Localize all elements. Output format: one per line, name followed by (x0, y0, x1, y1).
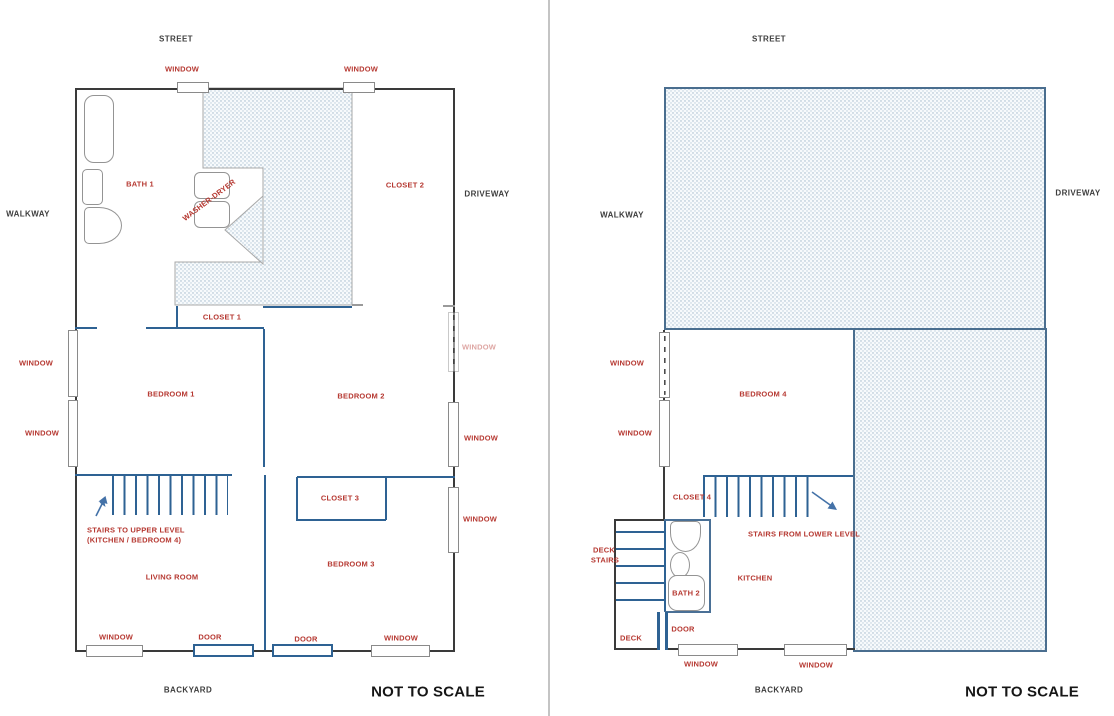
label-kitchen: KITCHEN (738, 574, 773, 583)
label-living-room: LIVING ROOM (146, 573, 199, 582)
label-bedroom1: BEDROOM 1 (147, 390, 194, 399)
label-window: WINDOW (384, 634, 418, 643)
label-deck: DECK (620, 634, 642, 643)
stairs-down-arrow-icon (806, 487, 846, 517)
label-not-to-scale: NOT TO SCALE (371, 684, 485, 701)
label-backyard: BACKYARD (164, 686, 212, 695)
label-driveway: DRIVEWAY (464, 190, 509, 199)
label-deck-stairs-2: STAIRS (591, 556, 619, 565)
label-stairs-from-lower: STAIRS FROM LOWER LEVEL (748, 530, 860, 539)
hatch-area-upper-top (665, 88, 1045, 329)
bathtub (84, 95, 114, 163)
stairs-from-lower-level (703, 477, 818, 517)
label-bath1: BATH 1 (126, 180, 154, 189)
label-window: WINDOW (344, 65, 378, 74)
label-closet3: CLOSET 3 (321, 494, 359, 503)
label-stairs-note-1: STAIRS TO UPPER LEVEL (87, 526, 185, 535)
label-bedroom4: BEDROOM 4 (739, 390, 786, 399)
wall-bedroom2-top (263, 306, 352, 308)
label-window-faded: WINDOW (462, 343, 496, 352)
label-closet4: CLOSET 4 (673, 493, 711, 502)
window-right-2 (448, 487, 459, 553)
label-backyard: BACKYARD (755, 686, 803, 695)
label-window: WINDOW (684, 660, 718, 669)
window-right-1 (448, 402, 459, 467)
window-upper-left-1 (659, 332, 670, 398)
floor-plan-canvas: BATH 1 WASHER-DRYER CLOSET 2 CLOSET 1 BE… (0, 0, 1114, 716)
label-door: DOOR (198, 633, 221, 642)
label-walkway: WALKWAY (6, 210, 50, 219)
door-kitchen-deck (657, 612, 668, 650)
label-not-to-scale: NOT TO SCALE (965, 684, 1079, 701)
wall-closet3-top (297, 476, 455, 478)
label-window: WINDOW (99, 633, 133, 642)
wall-segment-gray (352, 304, 363, 306)
label-street: STREET (159, 35, 193, 44)
door-bedroom3 (272, 644, 333, 657)
label-window: WINDOW (464, 434, 498, 443)
window-right-faded (448, 312, 459, 372)
label-street: STREET (752, 35, 786, 44)
label-closet2: CLOSET 2 (386, 181, 424, 190)
wall-tick-gray (443, 305, 455, 307)
label-bath2: BATH 2 (672, 589, 700, 598)
label-window: WINDOW (610, 359, 644, 368)
wall-closet3-left (296, 477, 298, 520)
label-window: WINDOW (19, 359, 53, 368)
label-window: WINDOW (799, 661, 833, 670)
label-window: WINDOW (25, 429, 59, 438)
window-upper-bottom-2 (784, 644, 847, 656)
window-top-2 (343, 82, 375, 93)
wall-bath2-right (709, 519, 711, 612)
wall-deck-top (614, 519, 665, 521)
door-livingroom (193, 644, 254, 657)
window-left-2 (68, 400, 78, 467)
wall-bedroom1-top-left (75, 327, 97, 329)
hatch-area-upper-right (854, 329, 1046, 651)
window-top-1 (177, 82, 209, 93)
label-closet1: CLOSET 1 (203, 313, 241, 322)
label-window: WINDOW (165, 65, 199, 74)
window-upper-bottom-1 (678, 644, 738, 656)
wall-livingroom-bedroom3-divider (264, 475, 266, 650)
wall-closet3-bottom (296, 519, 386, 521)
window-left-1 (68, 330, 78, 397)
label-driveway: DRIVEWAY (1055, 189, 1100, 198)
label-door: DOOR (671, 625, 694, 634)
wall-bedroom1-top-right (146, 327, 264, 329)
wall-closet3-right (385, 477, 387, 520)
label-door: DOOR (294, 635, 317, 644)
stairs-to-upper-level (112, 476, 228, 515)
sink-bath1 (82, 169, 103, 205)
label-bedroom3: BEDROOM 3 (327, 560, 374, 569)
label-deck-stairs-1: DECK (593, 546, 615, 555)
deck-stairs (616, 531, 665, 603)
stairs-up-arrow-icon (90, 483, 115, 521)
label-stairs-note-2: (KITCHEN / BEDROOM 4) (87, 536, 181, 545)
label-walkway: WALKWAY (600, 211, 644, 220)
window-upper-left-2 (659, 400, 670, 467)
wall-bath2-bottom (664, 611, 711, 613)
window-bottom-right (371, 645, 430, 657)
label-window: WINDOW (618, 429, 652, 438)
wall-bedroom1-bedroom2-divider (263, 329, 265, 467)
label-window: WINDOW (463, 515, 497, 524)
window-bottom-left (86, 645, 143, 657)
wall-closet1-left (176, 306, 178, 329)
label-bedroom2: BEDROOM 2 (337, 392, 384, 401)
